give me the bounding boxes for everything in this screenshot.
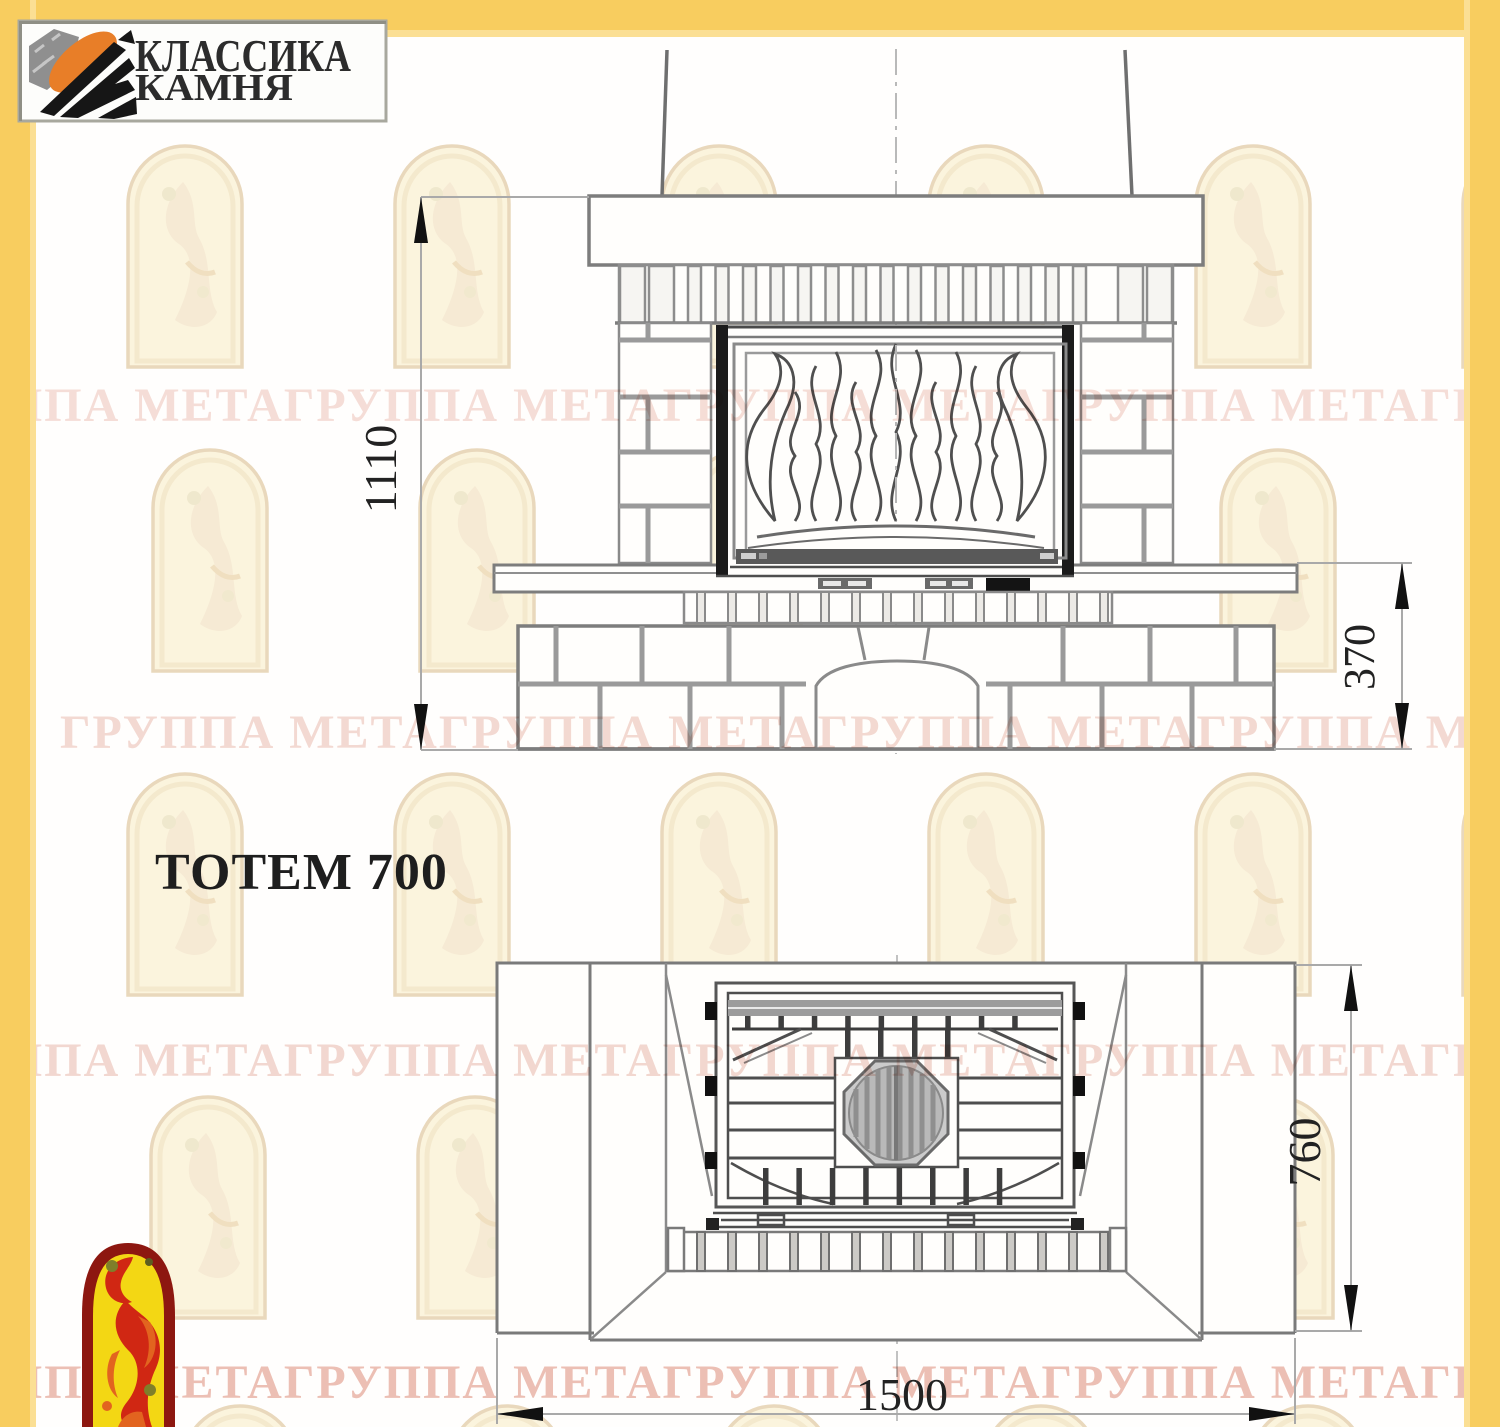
svg-text:1110: 1110 [355,425,406,514]
svg-text:ГРУППА МЕТАГРУППА МЕТАГРУППА М: ГРУППА МЕТАГРУППА МЕТАГРУППА МЕТАГРУППА … [0,1356,1500,1409]
svg-text:370: 370 [1335,624,1384,690]
svg-text:ТОТЕМ 700: ТОТЕМ 700 [155,844,448,901]
svg-text:КАМНЯ: КАМНЯ [135,67,293,109]
svg-text:ГРУППА МЕТАГРУППА МЕТАГРУППА М: ГРУППА МЕТАГРУППА МЕТАГРУППА МЕТАГРУППА … [0,379,1500,432]
svg-text:1500: 1500 [856,1369,948,1420]
svg-text:ГРУППА МЕТАГРУППА МЕТАГРУППА М: ГРУППА МЕТАГРУППА МЕТАГРУППА МЕТАГРУППА … [60,706,1500,759]
svg-text:760: 760 [1279,1118,1330,1187]
svg-text:ГРУППА МЕТАГРУППА МЕТАГРУППА М: ГРУППА МЕТАГРУППА МЕТАГРУППА МЕТАГРУППА … [0,1034,1500,1087]
